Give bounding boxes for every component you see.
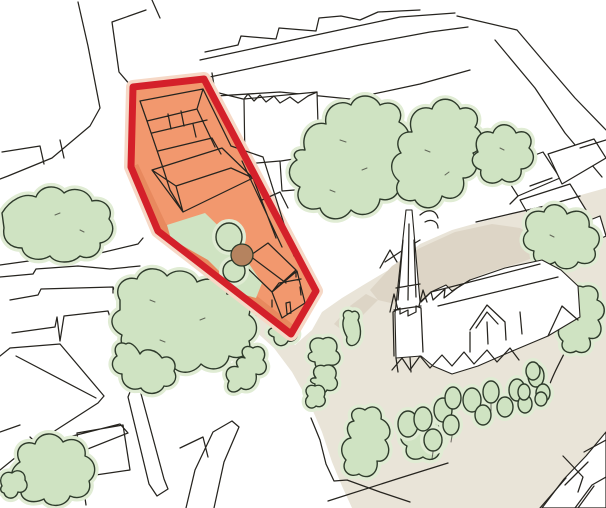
courtyard-brown-tree [231, 244, 253, 266]
site-sketch-map [0, 0, 606, 508]
